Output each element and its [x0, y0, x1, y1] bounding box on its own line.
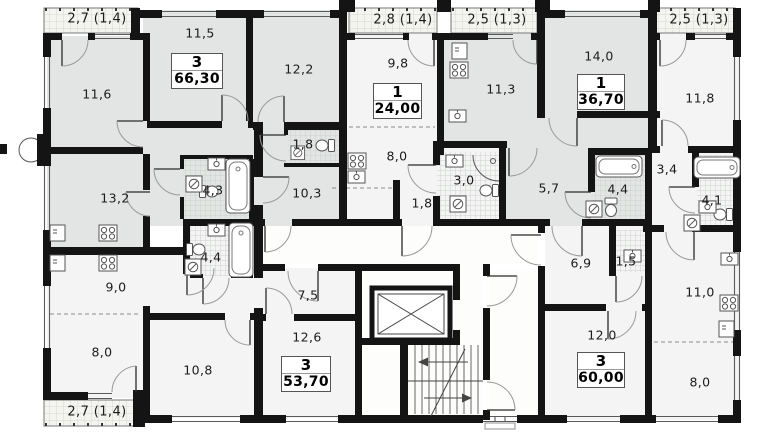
toilet-icon	[605, 198, 617, 217]
balcony-area-label: 2,5 (1,3)	[467, 13, 526, 28]
apartment-area: 60,00	[578, 370, 624, 387]
floorplan-drawing	[0, 0, 768, 432]
balcony-area-label: 2,7 (1,4)	[67, 405, 126, 420]
room-area-label: 8,0	[386, 149, 407, 164]
room-area-label: 4,1	[701, 193, 722, 208]
bathtub-icon	[596, 156, 642, 177]
room-area-label: 1,8	[411, 196, 432, 211]
sink-icon	[208, 158, 225, 170]
room-area-label: 8,0	[91, 345, 112, 360]
bathtub-icon	[226, 159, 250, 213]
room-area-label: 11,8	[685, 91, 714, 106]
sink-icon	[446, 155, 463, 167]
apartment-area: 53,70	[282, 374, 330, 391]
stove-icon	[450, 62, 468, 78]
washing-machine-icon	[185, 259, 201, 275]
room-area-label: 3,0	[453, 173, 474, 188]
balcony-area-label: 2,5 (1,3)	[669, 13, 728, 28]
kitchen-sink-icon	[348, 171, 365, 183]
apartment-stamp[interactable]: 3 60,00	[577, 352, 625, 388]
room-area-label: 9,0	[105, 280, 126, 295]
kitchen-sink-icon	[721, 253, 738, 265]
room-area-label: 10,8	[183, 363, 212, 378]
balcony-area-label: 2,7 (1,4)	[67, 12, 126, 27]
room-area-label: 11,6	[82, 87, 111, 102]
bathtub-icon	[694, 157, 740, 178]
apartment-stamp[interactable]: 3 66,30	[171, 53, 223, 89]
room-area-label: 3,4	[656, 162, 677, 177]
room-area-label: 12,2	[284, 62, 313, 77]
room-area-label: 1,5	[615, 254, 636, 269]
kitchen-sink-icon	[449, 110, 466, 122]
fridge-icon	[50, 255, 65, 271]
elevator-icon	[372, 288, 450, 340]
washing-machine-icon	[450, 196, 466, 212]
room-area-label: 4,4	[607, 182, 628, 197]
apartment-rooms-count: 3	[578, 353, 624, 370]
apartment-area: 66,30	[172, 71, 222, 88]
apartment-stamp[interactable]: 3 53,70	[281, 356, 331, 392]
toilet-icon	[316, 140, 335, 152]
room-area-label: 5,7	[538, 181, 559, 196]
floorplan-page: 11,6 11,5 12,2 13,2 4,3 1,8 10,3 9,8 8,0…	[0, 0, 768, 432]
room-area-label: 6,9	[570, 256, 591, 271]
sink-icon	[208, 224, 225, 236]
room-area-label: 14,0	[584, 49, 613, 64]
room-area-label: 13,2	[100, 191, 129, 206]
washing-machine-icon	[586, 201, 602, 217]
apartment-stamp[interactable]: 1 24,00	[373, 83, 422, 119]
room-area-label: 11,5	[185, 26, 214, 41]
room-area-label: 12,6	[292, 330, 321, 345]
balcony-area-label: 2,8 (1,4)	[373, 13, 432, 28]
toilet-icon	[480, 185, 499, 197]
room-area-label: 11,3	[486, 82, 515, 97]
bathtub-icon	[229, 223, 253, 277]
apartment-rooms-count: 3	[172, 54, 222, 71]
apartment-stamp[interactable]: 1 36,70	[577, 74, 625, 110]
room-area-label: 9,8	[387, 56, 408, 71]
apartment-rooms-count: 1	[578, 75, 624, 92]
apartment-area: 24,00	[374, 101, 421, 118]
room-area-label: 4,3	[202, 183, 223, 198]
fridge-icon	[452, 43, 467, 59]
stove-icon	[99, 225, 117, 241]
room-area-label: 7,5	[297, 288, 318, 303]
room-area-label: 10,3	[292, 186, 321, 201]
stove-icon	[99, 255, 117, 271]
washing-machine-icon	[684, 215, 700, 231]
room-area-label: 12,0	[587, 328, 616, 343]
room-area-label: 11,0	[685, 285, 714, 300]
room-area-label: 1,8	[292, 137, 313, 152]
apartment-area: 36,70	[578, 92, 624, 109]
room-area-label: 4,4	[200, 250, 221, 265]
fridge-icon	[50, 225, 65, 241]
room-area-label: 8,0	[689, 375, 710, 390]
apartment-rooms-count: 1	[374, 84, 421, 101]
fridge-icon	[719, 321, 734, 337]
stove-icon	[348, 153, 366, 169]
stove-icon	[720, 295, 738, 311]
apartment-rooms-count: 3	[282, 357, 330, 374]
toilet-icon	[714, 209, 733, 221]
washing-machine-icon	[186, 176, 202, 192]
